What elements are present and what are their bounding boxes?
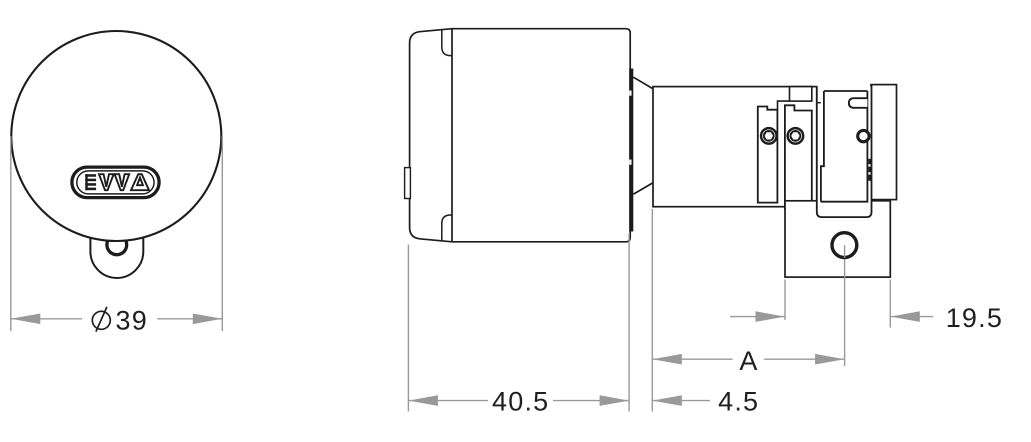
svg-text:40.5: 40.5 [492,387,549,417]
svg-text:A: A [739,346,757,376]
svg-text:39: 39 [116,305,148,335]
svg-text:19.5: 19.5 [946,303,1003,333]
svg-text:4.5: 4.5 [718,387,759,417]
